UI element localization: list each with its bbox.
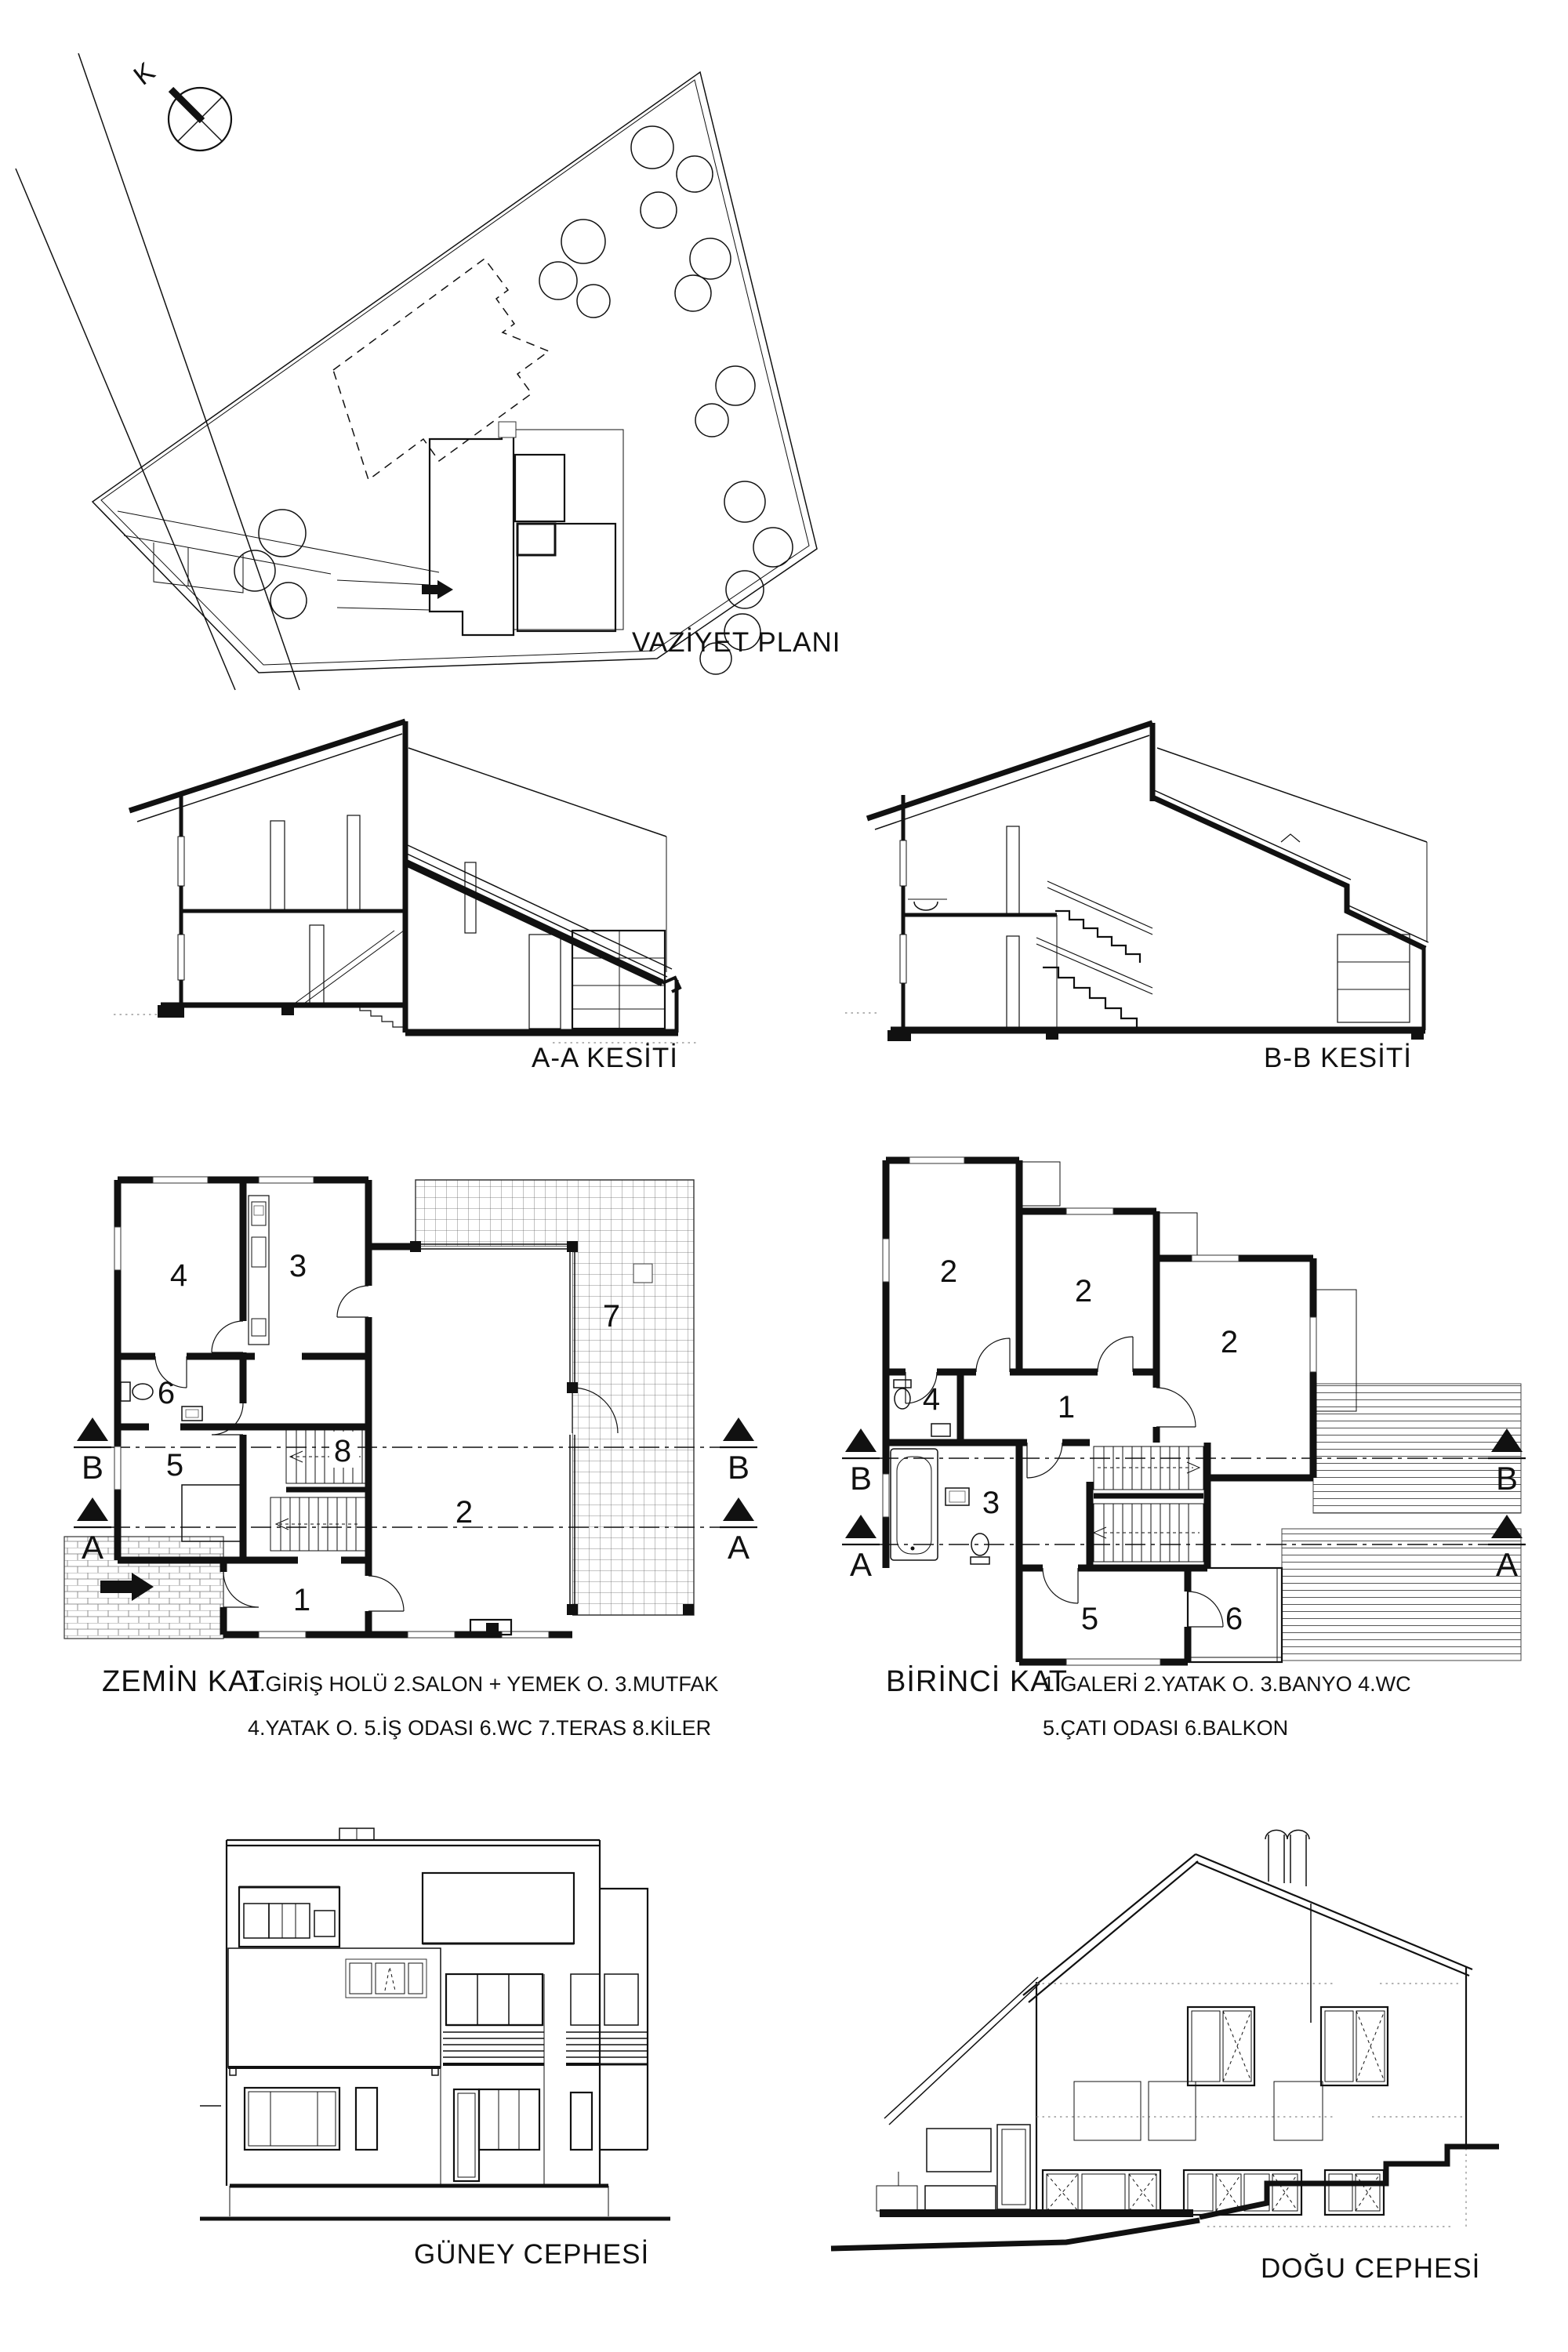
setback-dashed-outline <box>333 259 549 480</box>
svg-text:B: B <box>850 1460 872 1497</box>
room-number-office: 5 <box>166 1448 183 1483</box>
section-aa-drawing <box>114 676 710 1044</box>
room-number-kitchen: 3 <box>289 1249 307 1283</box>
room-number-bedroom-c: 2 <box>1221 1325 1238 1359</box>
svg-text:B: B <box>1496 1460 1518 1497</box>
room-number-bedroom: 4 <box>170 1258 187 1293</box>
ground-floor-title: ZEMİN KAT <box>102 1665 266 1699</box>
south-elevation-lines <box>200 1828 670 2219</box>
first-floor-title: BİRİNCİ KAT <box>886 1665 1068 1699</box>
east-elevation-title: DOĞU CEPHESİ <box>1261 2253 1480 2285</box>
south-elevation-drawing <box>200 1827 670 2234</box>
site-entrance <box>337 580 453 610</box>
entrance-arrow-icon <box>422 580 453 599</box>
ground-floor-legend-1: 1.GİRİŞ HOLÜ 2.SALON + YEMEK O. 3.MUTFAK <box>248 1672 718 1697</box>
east-elevation-lines <box>831 1830 1499 2249</box>
room-number-pantry: 8 <box>334 1434 351 1468</box>
first-floor-legend-2: 5.ÇATI ODASI 6.BALKON <box>1043 1716 1288 1740</box>
room-number-bedroom-b: 2 <box>1075 1274 1092 1308</box>
drawing-sheet: K VAZİYET PLANI <box>0 0 1568 2352</box>
section-marker-a-left: A <box>842 1515 880 1583</box>
svg-text:A: A <box>1496 1546 1518 1583</box>
room-number-entry-hall: 1 <box>293 1583 310 1617</box>
room-number-attic: 5 <box>1081 1602 1098 1636</box>
svg-text:A: A <box>850 1546 872 1583</box>
site-plan-title: VAZİYET PLANI <box>632 627 841 659</box>
room-number-wc: 6 <box>158 1376 175 1410</box>
section-bb-title: B-B KESİTİ <box>1264 1043 1412 1074</box>
svg-text:A: A <box>728 1529 750 1566</box>
section-aa-lines <box>114 721 698 1043</box>
first-floor-legend-1: 1.GALERİ 2.YATAK O. 3.BANYO 4.WC <box>1043 1672 1411 1697</box>
svg-text:B: B <box>82 1449 103 1486</box>
svg-text:B: B <box>728 1449 750 1486</box>
room-number-bathroom: 3 <box>982 1486 1000 1520</box>
room-number-living: 2 <box>456 1495 473 1530</box>
east-elevation-drawing <box>831 1835 1505 2250</box>
section-marker-a-right: A <box>720 1497 757 1566</box>
north-label: K <box>129 56 162 91</box>
site-plan-drawing: K <box>0 31 839 690</box>
room-number-bedroom-a: 2 <box>940 1254 957 1289</box>
section-marker-b-left: B <box>74 1417 111 1486</box>
room-number-wc: 4 <box>923 1382 940 1417</box>
section-bb-lines <box>845 723 1428 1041</box>
ground-floor-legend-2: 4.YATAK O. 5.İŞ ODASI 6.WC 7.TERAS 8.KİL… <box>248 1716 711 1740</box>
section-marker-b-right: B <box>720 1417 757 1486</box>
north-arrow-icon: K <box>129 56 231 151</box>
svg-text:A: A <box>82 1529 103 1566</box>
section-marker-b-left: B <box>842 1428 880 1497</box>
south-elevation-title: GÜNEY CEPHESİ <box>414 2239 649 2270</box>
roof-hatch <box>1282 1384 1521 1661</box>
section-aa-title: A-A KESİTİ <box>532 1043 678 1074</box>
ground-floor-plan-drawing: 4 3 6 5 8 1 2 7 B A B A <box>63 1121 768 1662</box>
room-number-gallery: 1 <box>1058 1390 1075 1425</box>
road-lines <box>16 53 299 690</box>
driveway-lines <box>118 511 439 593</box>
room-number-terrace: 7 <box>603 1299 620 1334</box>
house-footprint <box>430 422 623 635</box>
floor-plate <box>886 1160 1313 1568</box>
room-number-balcony: 6 <box>1225 1602 1243 1636</box>
first-floor-plan-drawing: 2 2 2 4 1 3 5 6 B A B A <box>831 1121 1537 1662</box>
section-bb-drawing <box>845 676 1457 1044</box>
